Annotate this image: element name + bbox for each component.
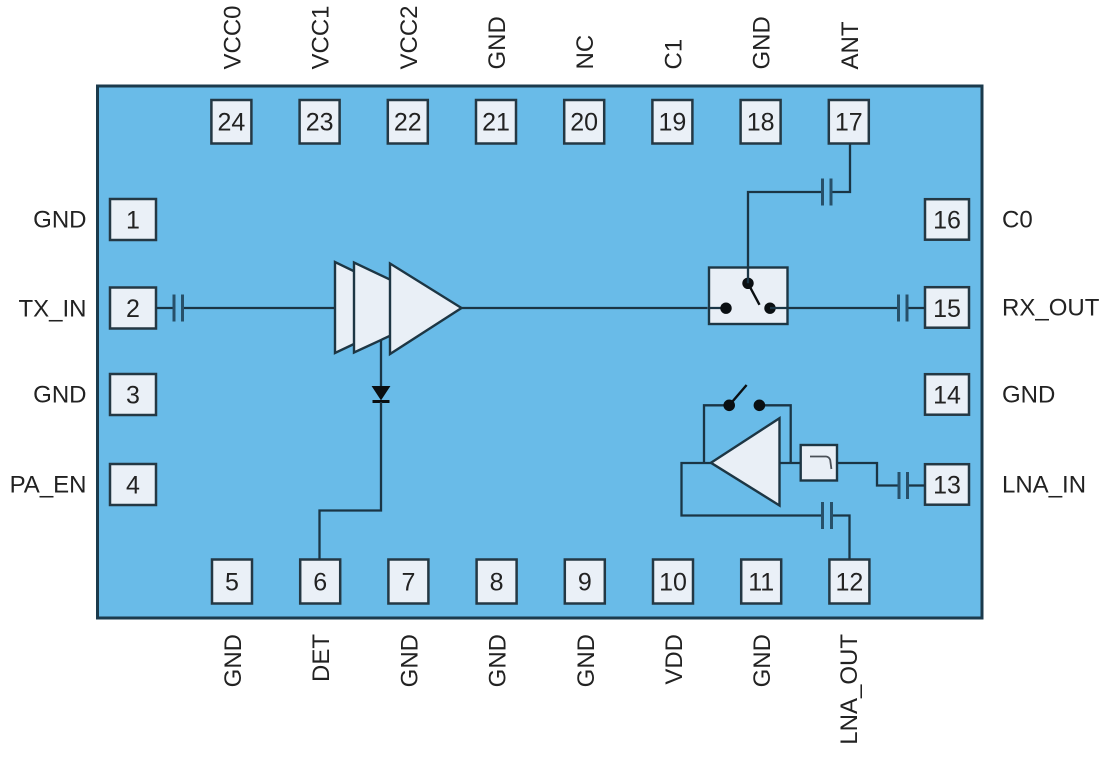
svg-text:GND: GND — [749, 16, 776, 69]
svg-text:24: 24 — [217, 109, 245, 137]
svg-text:1: 1 — [126, 207, 140, 235]
svg-text:GND: GND — [33, 382, 86, 409]
svg-text:4: 4 — [126, 472, 140, 500]
svg-text:ANT: ANT — [837, 21, 864, 69]
svg-text:5: 5 — [225, 569, 239, 597]
svg-text:GND: GND — [484, 16, 511, 69]
svg-text:GND: GND — [485, 634, 512, 687]
svg-text:20: 20 — [570, 109, 598, 137]
svg-text:21: 21 — [482, 109, 510, 137]
svg-text:RX_OUT: RX_OUT — [1002, 295, 1100, 322]
svg-text:VCC1: VCC1 — [308, 5, 335, 69]
svg-text:C0: C0 — [1002, 207, 1033, 234]
svg-text:15: 15 — [933, 295, 961, 323]
svg-text:C1: C1 — [660, 39, 687, 70]
svg-text:3: 3 — [126, 382, 140, 410]
svg-text:GND: GND — [1002, 382, 1055, 409]
svg-text:TX_IN: TX_IN — [18, 296, 86, 323]
svg-text:9: 9 — [578, 569, 592, 597]
svg-text:GND: GND — [33, 207, 86, 234]
svg-text:DET: DET — [308, 634, 335, 682]
svg-text:6: 6 — [313, 569, 327, 597]
svg-text:19: 19 — [658, 109, 686, 137]
svg-text:VCC0: VCC0 — [219, 5, 246, 69]
svg-text:GND: GND — [220, 634, 247, 687]
svg-text:NC: NC — [572, 35, 599, 70]
svg-text:GND: GND — [749, 634, 776, 687]
svg-text:LNA_OUT: LNA_OUT — [836, 634, 863, 745]
svg-text:13: 13 — [933, 472, 961, 500]
svg-text:18: 18 — [747, 109, 775, 137]
svg-text:LNA_IN: LNA_IN — [1002, 472, 1086, 499]
svg-text:VDD: VDD — [661, 634, 688, 685]
svg-text:10: 10 — [659, 569, 687, 597]
svg-text:22: 22 — [394, 109, 422, 137]
svg-text:14: 14 — [933, 382, 961, 410]
svg-text:PA_EN: PA_EN — [10, 472, 87, 499]
svg-text:GND: GND — [573, 634, 600, 687]
svg-text:7: 7 — [401, 569, 415, 597]
svg-text:17: 17 — [835, 109, 863, 137]
svg-text:8: 8 — [490, 569, 504, 597]
svg-text:16: 16 — [933, 207, 961, 235]
svg-text:VCC2: VCC2 — [396, 5, 423, 69]
svg-text:GND: GND — [396, 634, 423, 687]
svg-text:11: 11 — [748, 569, 774, 597]
svg-text:23: 23 — [306, 109, 334, 137]
svg-text:12: 12 — [835, 569, 863, 597]
svg-text:2: 2 — [126, 295, 140, 323]
